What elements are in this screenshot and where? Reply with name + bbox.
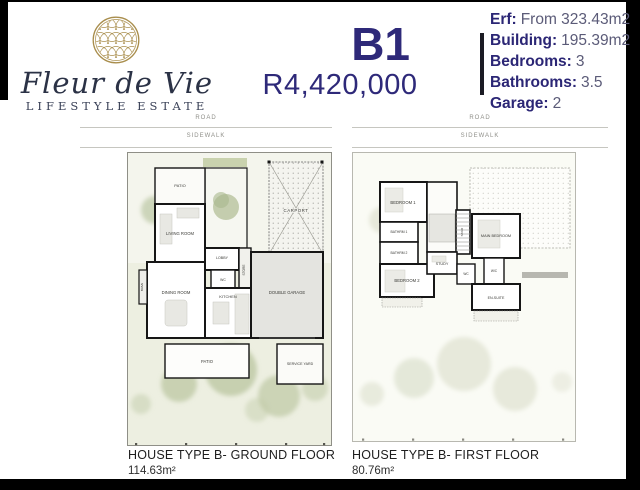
room-label-carport: CARPORT — [284, 208, 309, 213]
unit-code: B1 — [260, 21, 410, 67]
ground-floor-caption: HOUSE TYPE B- GROUND FLOOR — [128, 448, 335, 462]
frame-notch — [0, 100, 8, 479]
room-label-double-garage: DOUBLE GARAGE — [269, 290, 306, 295]
spec-row-garage: Garage:2 — [490, 93, 630, 114]
room-label-bedroom-2: BEDROOM 2 — [394, 278, 420, 283]
room-label-main-bedroom: MAIN BEDROOM — [481, 234, 511, 238]
room-label-wc: WC — [463, 272, 469, 276]
ground-floor-plan-drawing: PATIO LIVING ROOM LOBBY WC STORE CARPORT… — [127, 152, 332, 446]
spec-label: Building: — [490, 32, 557, 49]
room-label-service-yard: SERVICE YARD — [287, 362, 314, 366]
room-label-wc-2: W/C — [491, 269, 498, 273]
room-label-patio-bottom: PATIO — [201, 359, 214, 364]
room-label-en-suite: EN-SUITE — [488, 296, 505, 300]
room-label-store: STORE — [242, 265, 246, 276]
room-label-dining-room: DINING ROOM — [162, 290, 191, 295]
sidewalk-label-ground: SIDEWALK — [80, 133, 332, 139]
spec-row-building: Building:195.39m2 — [490, 30, 630, 51]
room-label-bathrm-1: BATHRM 1 — [391, 230, 408, 234]
ground-floor-area: 114.63m² — [128, 465, 176, 477]
sidewalk-line — [80, 147, 332, 148]
spec-list: Erf:From 323.43m2 Building:195.39m2 Bedr… — [490, 9, 630, 114]
room-label-kitchen: KITCHEN — [219, 294, 237, 299]
room-label-living-room: LIVING ROOM — [166, 231, 194, 236]
spec-value: 195.39m2 — [561, 32, 630, 49]
sidewalk-line — [352, 147, 608, 148]
room-label-bedroom-1: BEDROOM 1 — [390, 200, 416, 205]
road-line — [80, 127, 332, 128]
floorplan-brochure: Fleur de Vie LIFESTYLE ESTATE B1 R4,420,… — [0, 0, 640, 490]
room-label-braai: BRAAI — [140, 283, 144, 292]
price: R4,420,000 — [250, 71, 430, 100]
spec-label: Bathrooms: — [490, 74, 577, 91]
spec-label: Erf: — [490, 11, 517, 28]
spec-row-bedrooms: Bedrooms:3 — [490, 51, 630, 72]
spec-value: 3 — [576, 53, 585, 70]
road-label-ground: ROAD — [80, 115, 332, 121]
courtyard-tree — [213, 192, 229, 208]
spec-row-erf: Erf:From 323.43m2 — [490, 9, 630, 30]
spec-label: Bedrooms: — [490, 53, 572, 70]
room-label-bathrm-2: BATHRM 2 — [391, 251, 408, 255]
room-label-lobby: LOBBY — [216, 256, 229, 260]
spec-value: 3.5 — [581, 74, 603, 91]
spec-value: 2 — [553, 95, 562, 112]
room-label-study: STUDY — [436, 262, 449, 266]
first-floor-plan-drawing: BEDROOM 1 BATHRM 1 BATHRM 2 BEDROOM 2 ST… — [352, 152, 576, 442]
first-floor-caption: HOUSE TYPE B- FIRST FLOOR — [352, 448, 539, 462]
road-line — [352, 127, 608, 128]
room-label-stair: STAIR — [460, 227, 464, 236]
brand-subtitle: LIFESTYLE ESTATE — [10, 99, 224, 113]
terrace-bar — [522, 272, 568, 278]
spec-row-bathrooms: Bathrooms:3.5 — [490, 72, 630, 93]
spec-label: Garage: — [490, 95, 549, 112]
sidewalk-label-first: SIDEWALK — [352, 133, 608, 139]
spec-value: From 323.43m2 — [521, 11, 630, 28]
planter-strip — [203, 158, 247, 167]
first-floor-area: 80.76m² — [352, 465, 394, 477]
brand-name: Fleur de Vie — [10, 66, 224, 100]
road-label-first: ROAD — [352, 115, 608, 121]
room-label-patio-top: PATIO — [174, 183, 185, 188]
flower-of-life-icon — [92, 16, 140, 64]
room-label-wc: WC — [220, 278, 226, 282]
header-divider — [480, 33, 484, 95]
